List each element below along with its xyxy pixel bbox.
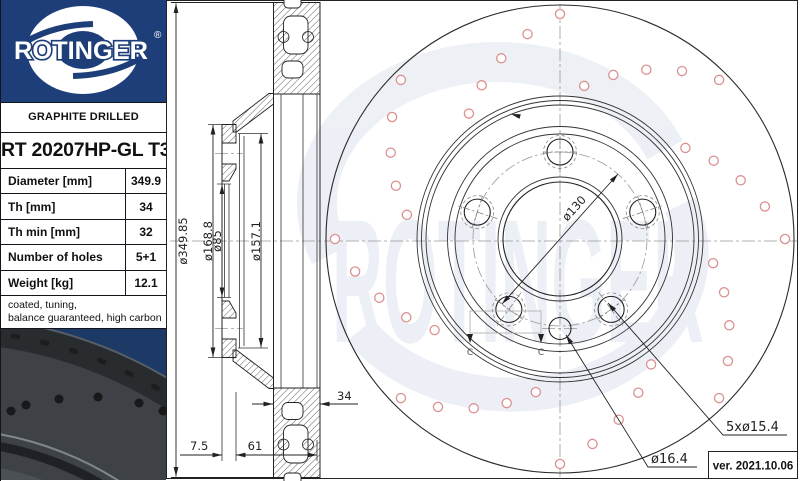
- drill-hole: [402, 210, 411, 219]
- datum-label-right: C: [538, 348, 544, 358]
- drill-hole: [634, 388, 643, 397]
- version-text: ver. 2021.10.06: [713, 461, 794, 473]
- drill-hole: [396, 75, 405, 84]
- spec-row-holes: Number of holes 5+1: [1, 245, 166, 270]
- drill-hole: [433, 402, 442, 411]
- notes-line-2: balance guaranteed, high carbon: [8, 312, 166, 325]
- spec-label: Th [mm]: [1, 200, 125, 214]
- dim-drill-holes: 5xø15.4: [726, 420, 779, 435]
- spec-row-diameter: Diameter [mm] 349.9: [1, 169, 166, 194]
- part-number: RT 20207HP-GL T3: [1, 133, 166, 169]
- drill-hole: [402, 313, 411, 322]
- drill-hole: [760, 202, 769, 211]
- drill-hole: [709, 259, 718, 268]
- section-flange-bottom: [222, 339, 236, 358]
- dim-height: 61: [248, 439, 263, 453]
- drill-hole: [375, 293, 384, 302]
- spec-label: Diameter [mm]: [1, 174, 125, 188]
- spec-label: Number of holes: [1, 250, 125, 264]
- dim-inner-diameter: ø157.1: [249, 221, 263, 261]
- section-flange-top: [222, 125, 236, 144]
- drill-hole: [588, 439, 597, 448]
- drawing-canvas: ROTINGER: [166, 0, 800, 481]
- dim-locating-hole: ø16.4: [651, 452, 688, 467]
- dim-thickness: 34: [337, 389, 352, 403]
- drill-hole: [725, 321, 734, 330]
- watermark: ROTINGER: [317, 62, 704, 395]
- sidebar: ROTINGER ® GRAPHITE DRILLED RT 20207HP-G…: [0, 0, 166, 481]
- drill-hole: [715, 394, 724, 403]
- registered-mark: ®: [154, 30, 162, 41]
- watermark-text: ROTINGER: [332, 184, 704, 380]
- section-hat-arm-top: [233, 94, 274, 133]
- drill-hole: [477, 81, 486, 90]
- brand-logo-graphic: ROTINGER ®: [1, 0, 167, 103]
- drill-hole: [388, 112, 397, 121]
- drill-hole: [580, 81, 589, 90]
- notes: coated, tuning, balance guaranteed, high…: [1, 296, 166, 329]
- section-pilot-bottom: [222, 301, 236, 318]
- technical-drawing: ROTINGER: [166, 0, 800, 481]
- datum-label-left: C: [467, 348, 473, 358]
- spec-value: 5+1: [125, 245, 166, 269]
- drill-hole: [709, 156, 718, 165]
- page: ROTINGER ® GRAPHITE DRILLED RT 20207HP-G…: [0, 0, 800, 481]
- spec-table: Diameter [mm] 349.9 Th [mm] 34 Th min [m…: [1, 169, 166, 296]
- spec-value: 32: [125, 220, 166, 244]
- brake-disc-photo: [1, 329, 166, 480]
- product-line-label: GRAPHITE DRILLED: [1, 103, 166, 133]
- spec-label: Weight [kg]: [1, 276, 125, 290]
- drill-hole: [681, 143, 690, 152]
- bolt-hole: [543, 131, 577, 173]
- section-pilot-top: [222, 164, 236, 181]
- drill-hole: [647, 360, 656, 369]
- brand-name: ROTINGER: [14, 37, 148, 65]
- spec-row-min-thickness: Th min [mm] 32: [1, 220, 166, 245]
- drill-hole: [715, 75, 724, 84]
- drill-hole: [502, 399, 511, 408]
- drill-hole: [642, 65, 651, 74]
- dim-bore-diameter: ø85: [210, 230, 224, 252]
- drill-hole: [531, 388, 540, 397]
- spec-row-weight: Weight [kg] 12.1: [1, 271, 166, 296]
- drill-hole: [351, 267, 360, 276]
- drill-hole: [391, 181, 400, 190]
- drill-hole: [736, 176, 745, 185]
- drill-hole: [330, 234, 339, 243]
- drill-hole: [469, 404, 478, 413]
- drill-hole: [780, 234, 789, 243]
- drill-hole: [555, 459, 564, 468]
- dim-offset: 7.5: [190, 439, 208, 453]
- drill-hole: [723, 356, 732, 365]
- drill-hole: [497, 54, 506, 63]
- spec-label: Th min [mm]: [1, 225, 125, 239]
- section-hat-arm-bottom: [233, 350, 274, 389]
- spec-row-thickness: Th [mm] 34: [1, 194, 166, 219]
- brand-logo: ROTINGER ®: [1, 0, 166, 103]
- spec-value: 349.9: [125, 169, 166, 193]
- drill-hole: [464, 109, 473, 118]
- drill-hole: [430, 326, 439, 335]
- drill-hole: [386, 148, 395, 157]
- drill-hole: [720, 288, 729, 297]
- notes-line-1: coated, tuning,: [8, 299, 166, 312]
- version-box: ver. 2021.10.06: [709, 452, 798, 479]
- dim-outer-diameter: ø349.85: [176, 217, 190, 264]
- spec-value: 34: [125, 194, 166, 218]
- drill-hole: [396, 394, 405, 403]
- drill-hole: [677, 67, 686, 76]
- drill-hole: [609, 70, 618, 79]
- product-photo: [1, 329, 166, 480]
- drill-hole: [523, 29, 532, 38]
- spec-value: 12.1: [125, 271, 166, 295]
- drill-hole: [555, 9, 564, 18]
